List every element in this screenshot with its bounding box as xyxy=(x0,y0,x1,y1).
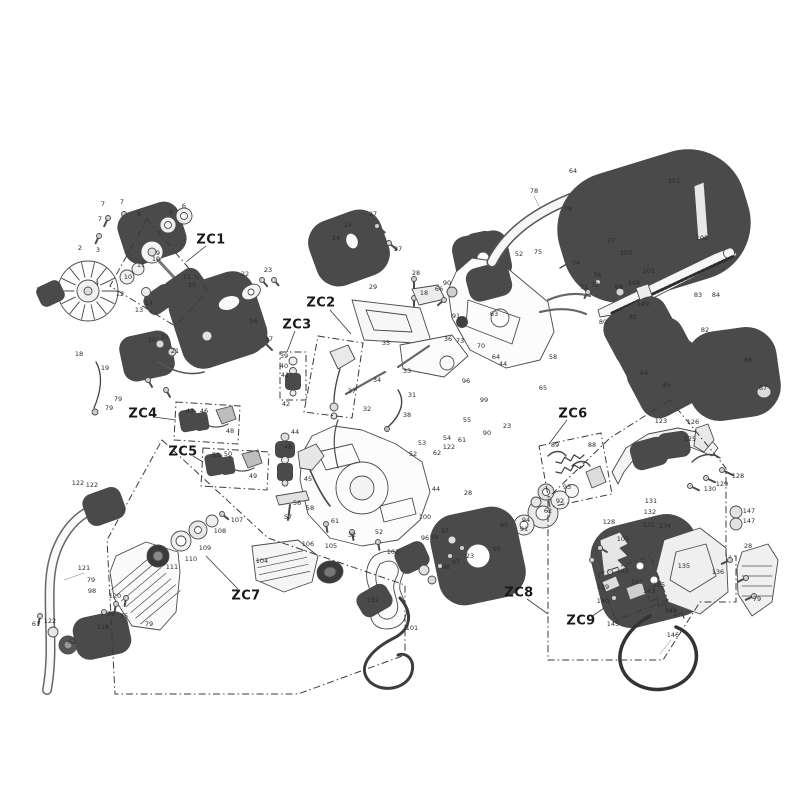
part-callout: 146 xyxy=(667,631,679,639)
part-callout: 65 xyxy=(539,384,547,392)
part-callout: 105 xyxy=(617,535,629,543)
part-callout: 17 xyxy=(265,335,273,343)
part-callout: 96 xyxy=(421,534,429,542)
part-callout: 143 xyxy=(643,587,655,595)
part-callout: 107 xyxy=(231,516,243,524)
part-callout: 28 xyxy=(412,269,420,277)
part-callout: 122 xyxy=(443,443,455,451)
part-callout: 48 xyxy=(284,443,292,451)
part-callout: 102 xyxy=(696,234,708,242)
part-callout: 33 xyxy=(403,367,411,375)
part-callout: 16 xyxy=(249,317,257,325)
part-callout: 103 xyxy=(387,548,399,556)
part-callout: 147 xyxy=(743,507,755,515)
part-callout: 128 xyxy=(732,472,744,480)
part-callout: 121 xyxy=(78,564,90,572)
part-callout: 122 xyxy=(86,481,98,489)
part-callout: 61 xyxy=(458,436,466,444)
part-callout: 8 xyxy=(137,210,141,218)
part-callout: 89 xyxy=(551,441,559,449)
part-callout: 50 xyxy=(224,450,232,458)
part-callout: 39 xyxy=(280,352,288,360)
zone-label-zc9: ZC9 xyxy=(566,614,595,629)
part-callout: 136 xyxy=(712,568,724,576)
part-callout: 1 xyxy=(36,286,40,294)
part-callout: 90 xyxy=(483,429,491,437)
part-callout: 76 xyxy=(593,271,601,279)
part-callout: 57 xyxy=(284,513,292,521)
zone-label-zc5: ZC5 xyxy=(168,445,197,460)
part-callout: 68 xyxy=(615,283,623,291)
part-callout: 14 xyxy=(145,299,153,307)
part-callout: 118 xyxy=(97,623,109,631)
part-callout: 73 xyxy=(456,337,464,345)
zone-leader-zc2 xyxy=(330,310,351,334)
part-callout: 87 xyxy=(759,384,767,392)
part-callout: 13 xyxy=(135,306,143,314)
part-callout: 110 xyxy=(185,555,197,563)
part-callout: 7 xyxy=(120,198,124,206)
part-callout: 98 xyxy=(88,587,96,595)
part-callout: 109 xyxy=(199,544,211,552)
part-callout: 31 xyxy=(408,391,416,399)
part-callout: 92 xyxy=(556,497,564,505)
part-callout: 7 xyxy=(98,215,102,223)
zone-label-zc2: ZC2 xyxy=(306,296,335,311)
part-callout: 3 xyxy=(96,246,100,254)
part-callout: 62 xyxy=(544,507,552,515)
zone-label-zc3: ZC3 xyxy=(282,318,311,333)
part-callout: 149 xyxy=(637,300,649,308)
part-callout: 36 xyxy=(444,335,452,343)
part-callout: 130 xyxy=(704,485,716,493)
part-callout: 11 xyxy=(183,273,191,281)
part-callout: 96 xyxy=(462,377,470,385)
part-callout: 44 xyxy=(499,360,507,368)
part-callout: 46 xyxy=(200,407,208,415)
part-callout: 131 xyxy=(645,497,657,505)
part-callout: 111 xyxy=(166,563,178,571)
part-callout: 129 xyxy=(716,480,728,488)
part-callout: 99 xyxy=(480,396,488,404)
part-callout: 22 xyxy=(241,270,249,278)
part-callout: 122 xyxy=(72,479,84,487)
zone-leader-zc1 xyxy=(186,246,206,262)
part-callout: 79 xyxy=(145,620,153,628)
part-callout: 25 xyxy=(344,221,352,229)
zone-label-zc1: ZC1 xyxy=(196,233,225,248)
part-callout: 64 xyxy=(492,353,500,361)
part-callout: 75 xyxy=(120,612,128,620)
part-callout: 134 xyxy=(659,522,671,530)
part-callout: 27 xyxy=(369,210,377,218)
zone-label-zc8: ZC8 xyxy=(504,586,533,601)
part-callout: 40 xyxy=(280,362,288,370)
part-callout: 108 xyxy=(214,527,226,535)
part-callout: 84 xyxy=(640,369,648,377)
part-callout: 6 xyxy=(182,202,186,210)
part-callout: 132 xyxy=(644,508,656,516)
part-callout: 95 xyxy=(500,521,508,529)
part-callout: 11 xyxy=(137,261,145,269)
part-callout: 99 xyxy=(430,533,438,541)
part-callout: 55 xyxy=(463,416,471,424)
part-callout: 49 xyxy=(249,472,257,480)
part-callout: 12 xyxy=(116,290,124,298)
part-callout: 15 xyxy=(188,281,196,289)
part-callout: 120 xyxy=(109,592,121,600)
zone-label-zc4: ZC4 xyxy=(128,407,157,422)
part-callout: 79 xyxy=(114,395,122,403)
part-callout: 41 xyxy=(281,371,289,379)
part-callout: 18 xyxy=(420,289,428,297)
part-callout: 98 xyxy=(442,563,450,571)
part-callout: 79 xyxy=(753,595,761,603)
part-callout: 106 xyxy=(302,540,314,548)
part-callout: 28 xyxy=(744,542,752,550)
part-callout: 144 xyxy=(665,607,677,615)
part-callout: 32 xyxy=(363,405,371,413)
part-callout: 100 xyxy=(419,513,431,521)
part-callout: 21 xyxy=(171,347,179,355)
part-callout: 140 xyxy=(597,597,609,605)
zone-leader-zc7 xyxy=(206,556,238,589)
part-callout: 72 xyxy=(591,281,599,289)
part-callout: 79 xyxy=(87,576,95,584)
part-callout: 147 xyxy=(743,517,755,525)
part-callout: 139 xyxy=(597,583,609,591)
part-callout: 35 xyxy=(382,339,390,347)
exploded-parts-diagram: 1234567778910101111121314151617181819202… xyxy=(0,0,800,800)
part-callout: 71 xyxy=(580,283,588,291)
part-callout: 101 xyxy=(643,267,655,275)
part-callout: 7 xyxy=(101,200,105,208)
part-callout: 10 xyxy=(124,273,132,281)
part-callout: 34 xyxy=(373,376,381,384)
part-callout: 79 xyxy=(564,205,572,213)
part-callout: 141 xyxy=(617,567,629,575)
part-callout: 44 xyxy=(291,428,299,436)
zone-label-zc6: ZC6 xyxy=(558,407,587,422)
part-callout: 135 xyxy=(643,521,655,529)
part-callout: 82 xyxy=(701,326,709,334)
part-callout: 19 xyxy=(101,364,109,372)
part-callout: 86 xyxy=(744,356,752,364)
part-callout: 97 xyxy=(452,558,460,566)
part-callout: 85 xyxy=(663,381,671,389)
part-callout: 79 xyxy=(105,404,113,412)
part-callout: 145 xyxy=(607,620,619,628)
part-callout: 77 xyxy=(607,237,615,245)
part-callout: 90 xyxy=(443,279,451,287)
zone-label-zc7: ZC7 xyxy=(231,589,260,604)
part-callout: 44 xyxy=(432,485,440,493)
part-callout: 23 xyxy=(466,552,474,560)
part-callout: 51 xyxy=(212,451,220,459)
part-callout: 27 xyxy=(394,245,402,253)
part-callout: 142 xyxy=(631,578,643,586)
part-callout: 61 xyxy=(331,517,339,525)
part-callout: 126 xyxy=(687,418,699,426)
part-callout: 18 xyxy=(75,350,83,358)
part-callout: 52 xyxy=(409,450,417,458)
part-callout: 97 xyxy=(441,527,449,535)
part-callout: 62 xyxy=(433,449,441,457)
part-callout: 23 xyxy=(503,422,511,430)
part-callout: 54 xyxy=(443,434,451,442)
part-callout: 29 xyxy=(369,283,377,291)
part-callout: 93 xyxy=(563,483,571,491)
part-callout: 63 xyxy=(490,310,498,318)
part-callout: 91 xyxy=(520,525,528,533)
part-callout: 128 xyxy=(603,518,615,526)
part-callout: 47 xyxy=(186,407,194,415)
part-callout: 37 xyxy=(348,387,356,395)
part-callout: 10 xyxy=(152,255,160,263)
part-callout: 74 xyxy=(572,259,580,267)
part-callout: 122 xyxy=(44,617,56,625)
part-callout: 91 xyxy=(452,312,460,320)
part-callout: 151 xyxy=(668,177,680,185)
part-callout: 24 xyxy=(332,234,340,242)
part-callout: 20 xyxy=(148,336,156,344)
part-callout: 52 xyxy=(515,250,523,258)
part-callout: 62 xyxy=(68,638,76,646)
part-callout: 152 xyxy=(367,596,379,604)
part-callout: 78 xyxy=(530,187,538,195)
part-callout: 58 xyxy=(549,353,557,361)
part-callout: 23 xyxy=(264,266,272,274)
part-callout: 52 xyxy=(375,528,383,536)
part-callout: 28 xyxy=(464,489,472,497)
part-callout: 38 xyxy=(403,411,411,419)
part-callout: 75 xyxy=(534,248,542,256)
part-callout: 125 xyxy=(684,435,696,443)
part-callout: 88 xyxy=(588,441,596,449)
part-callout: 79 xyxy=(107,610,115,618)
part-callout: 104 xyxy=(256,557,268,565)
part-callout: 80 xyxy=(599,318,607,326)
part-callout: 95 xyxy=(493,545,501,553)
part-callout: 64 xyxy=(569,167,577,175)
zone-leader-zc3 xyxy=(287,331,295,352)
part-callout: 21 xyxy=(161,333,169,341)
part-callout: 4 xyxy=(95,279,99,287)
part-callout: 123 xyxy=(655,417,667,425)
part-callout: 45 xyxy=(304,475,312,483)
part-callout: 148 xyxy=(628,279,640,287)
part-callout: 48 xyxy=(226,427,234,435)
part-callout: 32 xyxy=(348,531,356,539)
part-callout: 2 xyxy=(78,244,82,252)
part-callout: 61 xyxy=(32,620,40,628)
part-callout: 105 xyxy=(325,542,337,550)
zone-leader-zc8 xyxy=(527,599,548,614)
part-callout: 56 xyxy=(293,499,301,507)
part-callout: 83 xyxy=(694,291,702,299)
part-callout: 58 xyxy=(306,504,314,512)
part-callout: 84 xyxy=(712,291,720,299)
part-callout: 150 xyxy=(620,249,632,257)
parts-diagram-page: 1234567778910101111121314151617181819202… xyxy=(0,0,800,800)
part-callout: 135 xyxy=(678,562,690,570)
part-callout: 101 xyxy=(406,624,418,632)
part-callout: 42 xyxy=(282,400,290,408)
part-callout: 81 xyxy=(629,313,637,321)
part-callout: 5 xyxy=(169,208,173,216)
part-callout: 53 xyxy=(418,439,426,447)
part-callout: 70 xyxy=(477,342,485,350)
part-callout: 94 xyxy=(522,516,530,524)
